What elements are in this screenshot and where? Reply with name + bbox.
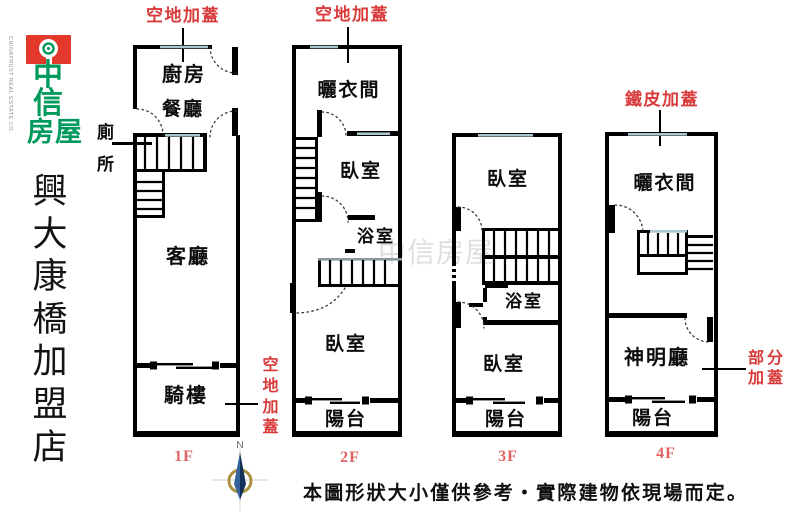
annotation-leader-2f-top <box>347 27 349 63</box>
room-label-bedroom-front-2f: 臥室 <box>340 162 382 181</box>
stairs-3f-lower-treads <box>494 259 549 281</box>
room-label-balcony-4f: 陽台 <box>632 409 674 428</box>
annotation-open-roof-1f-top: 空地加蓋 <box>146 7 220 24</box>
floor-label-4f: 4F <box>656 445 676 463</box>
room-label-kitchen-1f: 廚房 <box>162 65 206 85</box>
door-arcs-3f <box>458 207 484 328</box>
annotation-partial-roof-4f: 部分加蓋 <box>744 349 790 389</box>
room-label-bath-2f: 浴室 <box>357 228 395 245</box>
stairs-4f-upper-treads <box>648 233 678 254</box>
logo-char-xin: 信 <box>33 89 63 119</box>
stairs-2f-mid-treads <box>330 260 385 284</box>
window-4f-stairs <box>650 230 687 233</box>
company-name-english: CHINATRUST REAL ESTATE CO. <box>7 36 13 156</box>
annotation-leader-1f-side <box>225 403 258 405</box>
floor-label-3f: 3F <box>498 448 518 466</box>
stairs-3f-upper-treads <box>494 231 549 255</box>
room-label-toilet-1f: 廁所 <box>96 117 115 180</box>
room-label-bedroom-back-3f: 臥室 <box>483 355 525 374</box>
floorplan-4f <box>605 110 746 437</box>
room-label-balcony-3f: 陽台 <box>485 410 527 429</box>
annotation-leader-1f-top <box>182 28 184 62</box>
window-1f-stairs <box>165 134 200 137</box>
room-label-balcony-2f: 陽台 <box>325 410 367 429</box>
floorplan-1f <box>112 28 258 437</box>
window-2f-interior <box>357 132 390 135</box>
annotation-leader-4f-top <box>659 110 661 146</box>
room-label-shrine-4f: 神明廳 <box>624 348 690 368</box>
room-label-bedroom-front-3f: 臥室 <box>487 170 529 189</box>
compass-rose <box>212 449 268 511</box>
disclaimer-text: 本圖形狀大小僅供參考‧實際建物依現場而定。 <box>303 484 748 503</box>
floorplan-page: 中信房屋 <box>0 0 800 524</box>
annotation-metal-roof-4f: 鐵皮加蓋 <box>625 91 699 108</box>
room-label-laundry-4f: 曬衣間 <box>633 174 696 193</box>
floor-label-2f: 2F <box>340 449 360 467</box>
window-bar-2f-left <box>290 283 296 313</box>
window-1f-top <box>160 46 208 49</box>
north-indicator-label: N <box>236 439 244 451</box>
annotation-leader-4f-side <box>702 368 746 370</box>
floor-label-1f: 1F <box>174 448 194 466</box>
stairs-1f-upper-treads <box>145 137 193 169</box>
store-name-vertical: 興大康橋加盟店 <box>28 171 72 469</box>
room-label-arcade-1f: 騎樓 <box>164 386 208 406</box>
logo-chars-fangwu: 房屋 <box>27 119 83 146</box>
room-label-bedroom-back-2f: 臥室 <box>325 335 367 354</box>
stairs-4f-right-treads <box>688 245 713 269</box>
window-2f-top <box>310 46 338 49</box>
annotation-open-roof-2f-top: 空地加蓋 <box>315 6 389 23</box>
room-label-bath-3f: 浴室 <box>505 293 543 310</box>
door-arcs-1f <box>137 47 236 137</box>
floorplan-linework <box>0 0 800 524</box>
room-label-living-1f: 客廳 <box>166 247 210 267</box>
annotation-open-roof-1f-side: 空地加蓋 <box>261 356 280 439</box>
window-3f-top <box>478 134 533 137</box>
window-4f-top <box>628 133 687 136</box>
stairs-1f-lower-treads <box>137 182 162 209</box>
room-label-laundry-2f: 曬衣間 <box>317 81 380 100</box>
room-label-dining-1f: 餐廳 <box>162 100 204 119</box>
stairs-2f-left-treads <box>296 148 315 208</box>
